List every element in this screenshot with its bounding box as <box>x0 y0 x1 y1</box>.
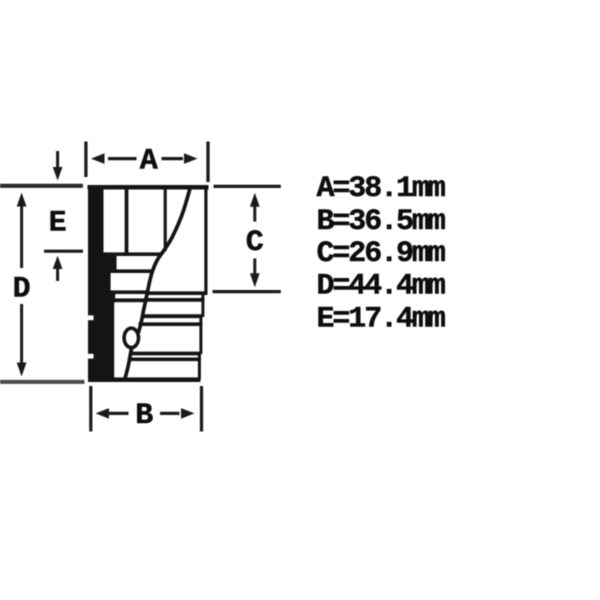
svg-text:E: E <box>49 207 67 241</box>
svg-text:D=44.4mm: D=44.4mm <box>317 269 445 303</box>
svg-text:B=36.5mm: B=36.5mm <box>317 205 445 239</box>
svg-text:A: A <box>140 145 158 179</box>
svg-text:C: C <box>246 226 264 260</box>
svg-text:A=38.1mm: A=38.1mm <box>317 172 445 206</box>
svg-text:E=17.4mm: E=17.4mm <box>317 303 445 337</box>
svg-text:C=26.9mm: C=26.9mm <box>317 237 445 271</box>
svg-text:D: D <box>13 273 31 307</box>
svg-text:B: B <box>135 399 153 433</box>
